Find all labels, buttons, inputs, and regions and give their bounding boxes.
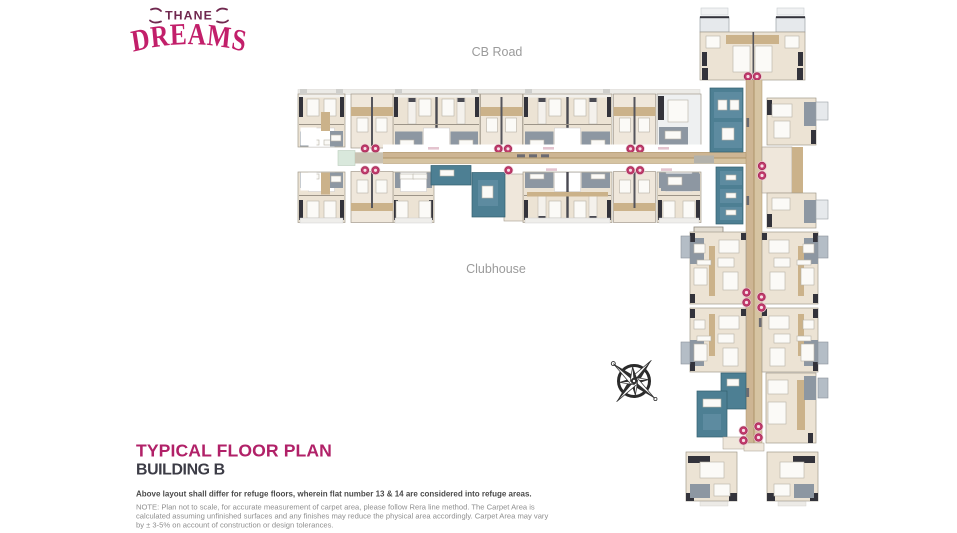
svg-text:BUILDING B: BUILDING B bbox=[136, 462, 225, 479]
svg-text:by ± 3-5% on account of constr: by ± 3-5% on account of construction or … bbox=[136, 521, 334, 530]
svg-text:NOTE: Plan not to scale, for a: NOTE: Plan not to scale, for accurate me… bbox=[136, 503, 535, 512]
svg-text:TYPICAL FLOOR PLAN: TYPICAL FLOOR PLAN bbox=[136, 441, 332, 461]
svg-text:Clubhouse: Clubhouse bbox=[466, 262, 526, 276]
svg-text:calculated assuming unfinished: calculated assuming unfinished surfaces … bbox=[136, 512, 548, 521]
svg-text:Above layout shall differ for: Above layout shall differ for refuge flo… bbox=[136, 490, 532, 499]
svg-text:CB Road: CB Road bbox=[472, 45, 523, 59]
